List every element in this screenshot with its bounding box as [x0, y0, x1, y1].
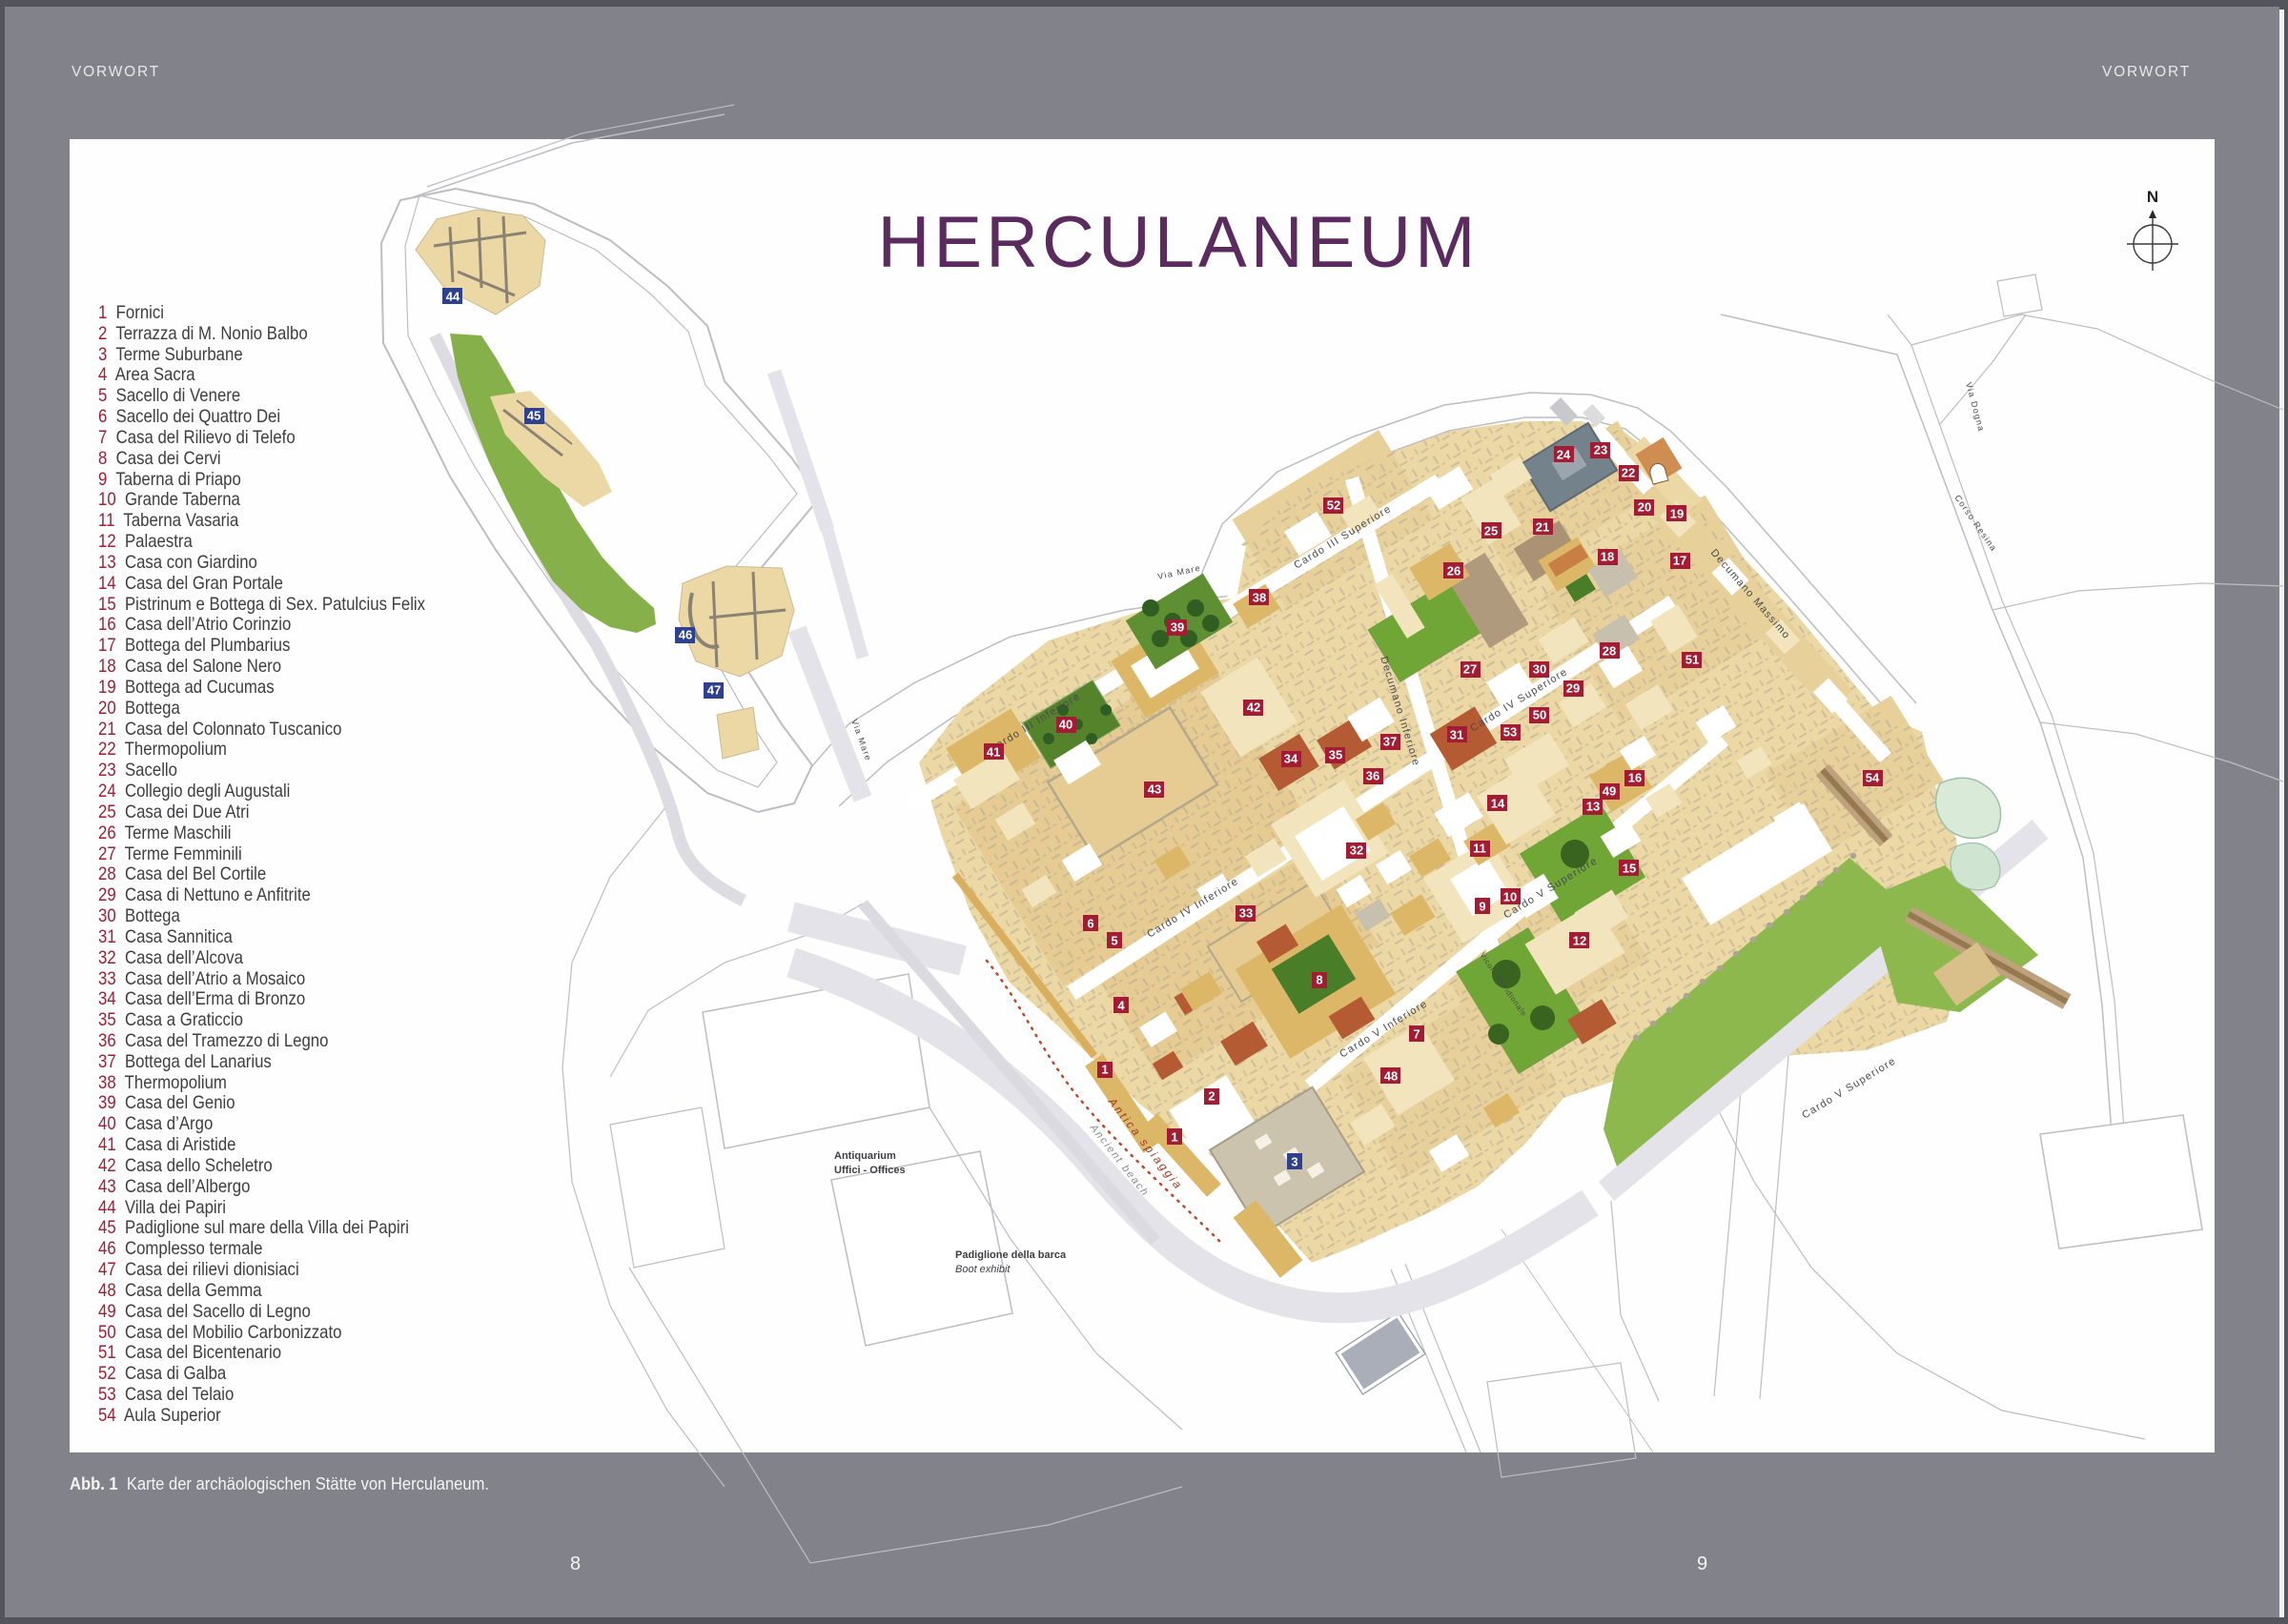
svg-text:31: 31 — [1450, 728, 1463, 742]
svg-text:25: 25 — [1484, 524, 1498, 538]
svg-text:10: 10 — [1503, 890, 1517, 904]
svg-text:Cardo V Superiore: Cardo V Superiore — [1800, 1055, 1898, 1121]
svg-text:11: 11 — [1473, 842, 1486, 856]
svg-text:49: 49 — [1603, 784, 1616, 799]
svg-text:6: 6 — [1087, 917, 1093, 931]
svg-text:36: 36 — [1366, 769, 1379, 783]
svg-text:48: 48 — [1384, 1069, 1398, 1084]
svg-text:33: 33 — [1239, 906, 1253, 921]
svg-text:18: 18 — [1601, 550, 1614, 564]
svg-text:17: 17 — [1673, 554, 1686, 568]
svg-text:16: 16 — [1628, 771, 1642, 785]
svg-text:Boot exhibit: Boot exhibit — [955, 1264, 1011, 1275]
svg-text:23: 23 — [1594, 443, 1607, 457]
svg-text:35: 35 — [1329, 748, 1342, 762]
svg-text:43: 43 — [1148, 782, 1161, 797]
svg-text:Antiquarium: Antiquarium — [834, 1150, 896, 1162]
svg-text:39: 39 — [1171, 620, 1184, 635]
svg-text:Padiglione della barca: Padiglione della barca — [955, 1249, 1067, 1261]
svg-text:N: N — [2147, 188, 2158, 206]
svg-text:42: 42 — [1247, 700, 1260, 715]
svg-text:46: 46 — [679, 628, 692, 642]
svg-text:53: 53 — [1503, 725, 1517, 740]
svg-text:21: 21 — [1536, 520, 1549, 535]
svg-text:32: 32 — [1350, 843, 1363, 858]
svg-text:1: 1 — [1171, 1130, 1177, 1145]
svg-text:22: 22 — [1622, 466, 1635, 480]
svg-text:4: 4 — [1117, 999, 1125, 1013]
svg-text:Via Dogna: Via Dogna — [1964, 381, 1987, 433]
svg-text:Uffici - Offices: Uffici - Offices — [834, 1165, 906, 1176]
svg-text:27: 27 — [1463, 662, 1477, 677]
svg-text:52: 52 — [1327, 498, 1340, 513]
svg-text:47: 47 — [707, 683, 721, 698]
svg-text:9: 9 — [1479, 900, 1485, 914]
svg-text:7: 7 — [1413, 1027, 1420, 1042]
svg-text:41: 41 — [987, 745, 1000, 760]
svg-text:8: 8 — [1316, 973, 1322, 987]
svg-text:29: 29 — [1566, 681, 1580, 696]
svg-text:14: 14 — [1491, 797, 1505, 811]
svg-text:13: 13 — [1586, 800, 1600, 814]
svg-text:37: 37 — [1383, 735, 1397, 749]
svg-text:5: 5 — [1111, 934, 1117, 948]
svg-text:1: 1 — [1101, 1063, 1108, 1077]
svg-text:34: 34 — [1284, 752, 1298, 766]
svg-text:45: 45 — [527, 409, 541, 423]
svg-text:19: 19 — [1670, 507, 1684, 521]
svg-text:50: 50 — [1533, 708, 1546, 722]
svg-text:38: 38 — [1253, 591, 1266, 605]
svg-text:2: 2 — [1208, 1089, 1215, 1104]
svg-text:30: 30 — [1533, 662, 1546, 677]
svg-text:20: 20 — [1638, 500, 1651, 515]
svg-text:3: 3 — [1291, 1155, 1297, 1169]
svg-text:24: 24 — [1557, 448, 1571, 462]
svg-text:51: 51 — [1685, 653, 1699, 667]
svg-text:44: 44 — [446, 290, 460, 304]
svg-text:15: 15 — [1623, 862, 1636, 876]
svg-text:54: 54 — [1866, 771, 1880, 785]
svg-text:26: 26 — [1447, 564, 1461, 579]
svg-text:12: 12 — [1573, 934, 1586, 948]
svg-text:40: 40 — [1059, 718, 1072, 732]
svg-text:28: 28 — [1603, 644, 1616, 659]
